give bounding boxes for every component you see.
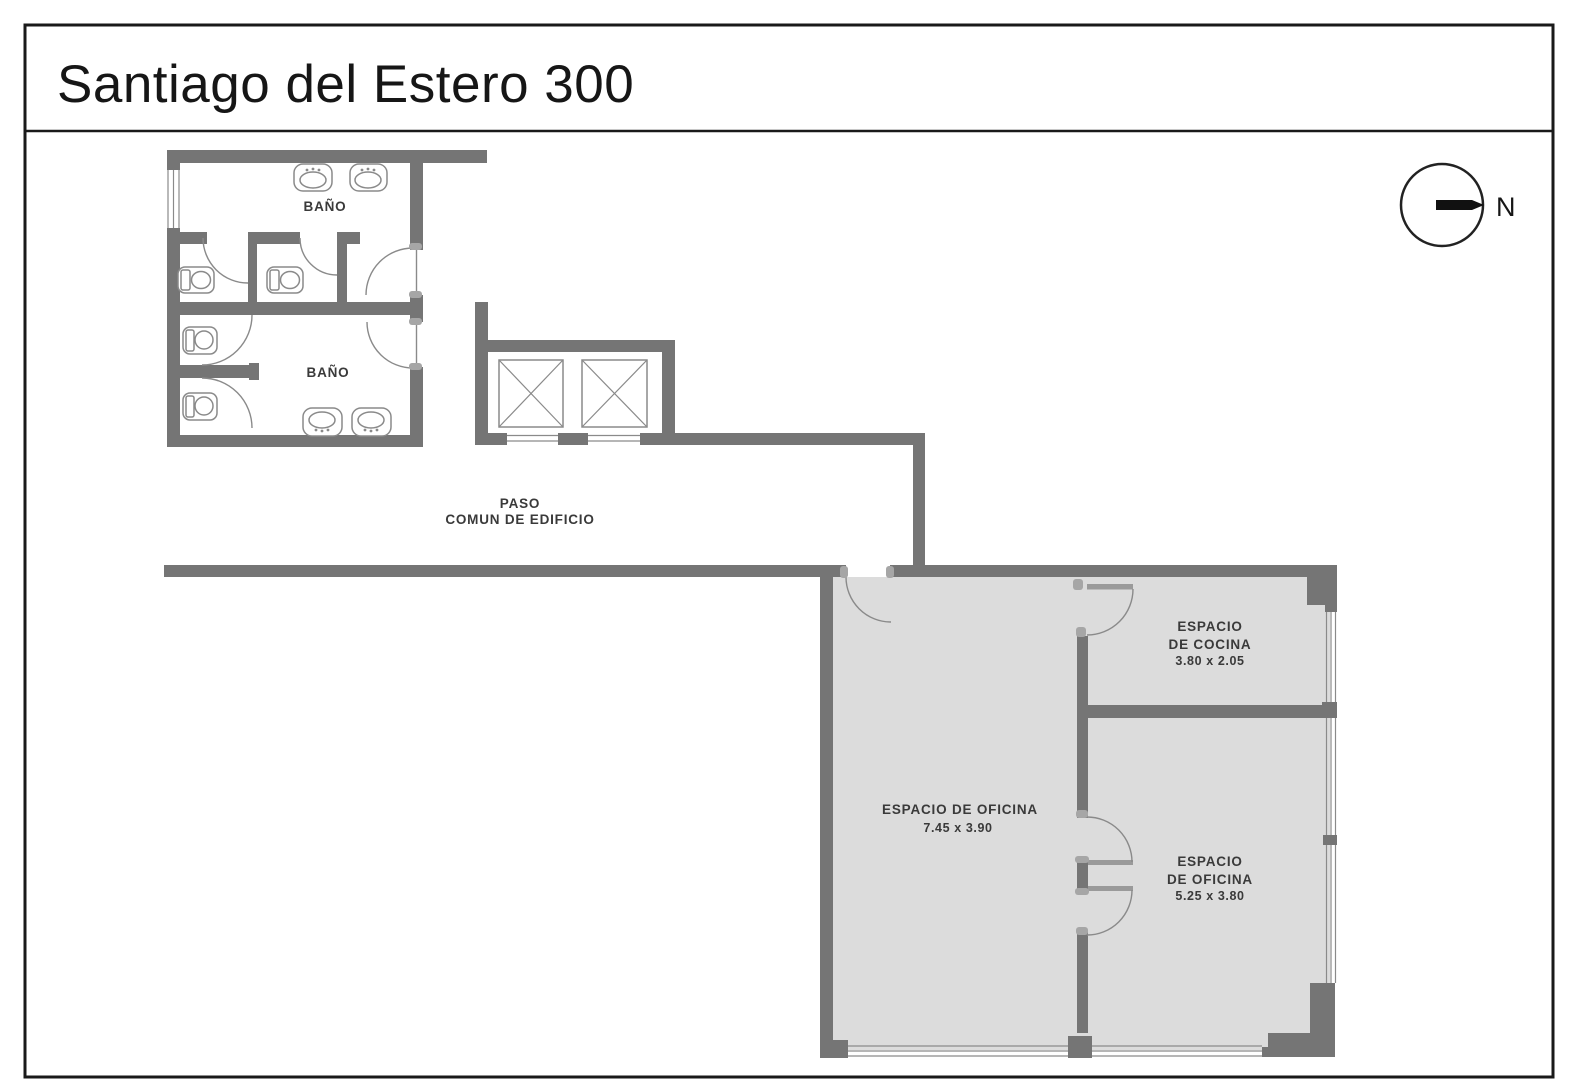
faucet-dot xyxy=(376,429,379,432)
elevator-block xyxy=(475,302,675,445)
floor-plan-canvas: Santiago del Estero 300 N xyxy=(0,0,1580,1080)
floor-plan-page: Santiago del Estero 300 N xyxy=(0,0,1580,1080)
wall xyxy=(1077,718,1088,818)
stall-partition xyxy=(337,232,347,302)
door-jamb xyxy=(840,566,848,578)
door-swing xyxy=(366,248,413,295)
door-leaf xyxy=(1087,584,1133,590)
door-leaf xyxy=(1088,886,1133,891)
wall xyxy=(662,340,675,443)
toilet xyxy=(178,267,214,293)
corridor: PASO COMUN DE EDIFICIO xyxy=(164,433,925,577)
door-jamb xyxy=(1076,810,1088,818)
stall-partition xyxy=(180,365,258,378)
window-mullion xyxy=(1323,835,1337,845)
room-label-office-main: ESPACIO DE OFICINA xyxy=(882,802,1038,817)
wall xyxy=(410,295,423,322)
wall xyxy=(167,150,487,163)
faucet-dot xyxy=(327,429,330,432)
faucet-dot xyxy=(306,169,309,172)
door-jamb xyxy=(409,363,422,370)
faucet-dot xyxy=(373,169,376,172)
toilet-tank xyxy=(270,270,279,290)
door-jamb xyxy=(886,566,894,578)
wall xyxy=(475,433,507,445)
wall xyxy=(475,302,488,443)
door-jamb xyxy=(1075,856,1089,863)
sink xyxy=(352,408,391,436)
faucet-dot xyxy=(312,168,315,171)
room-label-office-small-line1: ESPACIO xyxy=(1177,854,1242,869)
wall xyxy=(820,577,833,1040)
wall xyxy=(1077,861,1088,890)
toilet-bowl xyxy=(281,272,300,289)
room-label-kitchen-line2: DE COCINA xyxy=(1169,637,1252,652)
room-label-office-small-line2: DE OFICINA xyxy=(1167,872,1253,887)
window-mullion xyxy=(1322,702,1337,718)
toilet xyxy=(183,393,217,420)
toilet-bowl xyxy=(195,331,213,349)
door-jamb xyxy=(1073,579,1083,590)
bathroom-block: BAÑO BAÑO xyxy=(166,150,487,447)
north-arrow-icon xyxy=(1436,200,1484,210)
stall-partition-cap xyxy=(249,363,259,380)
faucet-dot xyxy=(370,430,373,433)
wall xyxy=(558,433,588,445)
door-jamb xyxy=(409,318,422,325)
stall-front-wall xyxy=(347,232,360,244)
sink xyxy=(350,164,387,191)
toilet-tank xyxy=(181,270,190,290)
wall xyxy=(488,340,673,352)
sink-basin xyxy=(358,412,384,428)
room-label-kitchen-line1: ESPACIO xyxy=(1177,619,1242,634)
faucet-dot xyxy=(315,429,318,432)
wall xyxy=(1077,932,1088,1033)
room-dims-kitchen: 3.80 x 2.05 xyxy=(1175,654,1244,668)
north-label: N xyxy=(1496,192,1516,222)
door-jamb xyxy=(1076,927,1088,935)
corridor-label-line1: PASO xyxy=(500,496,540,511)
door-jamb xyxy=(1075,888,1089,895)
sink-basin xyxy=(309,412,335,428)
wall xyxy=(1077,705,1322,718)
wall xyxy=(410,367,423,435)
faucet-dot xyxy=(361,169,364,172)
wall xyxy=(640,433,925,445)
door-leaf xyxy=(1088,860,1133,865)
toilet-bowl xyxy=(192,272,211,289)
toilet xyxy=(267,267,303,293)
toilet xyxy=(183,327,217,354)
faucet-dot xyxy=(321,430,324,433)
door-jamb xyxy=(1076,627,1086,637)
room-label-bathroom-top: BAÑO xyxy=(304,199,347,214)
faucet-dot xyxy=(364,429,367,432)
corner-column xyxy=(1068,1036,1092,1058)
sink xyxy=(303,408,342,436)
wall xyxy=(913,445,925,565)
wall xyxy=(410,163,423,250)
corner-column xyxy=(820,1040,848,1058)
toilet-bowl xyxy=(195,397,213,415)
sink-basin xyxy=(300,172,326,188)
wall xyxy=(890,565,1337,577)
door-jamb xyxy=(409,243,422,250)
faucet-dot xyxy=(367,168,370,171)
stall-partition xyxy=(248,232,257,302)
toilet-tank xyxy=(186,396,194,417)
faucet-dot xyxy=(318,169,321,172)
wall xyxy=(180,302,410,315)
room-dims-office-small: 5.25 x 3.80 xyxy=(1175,889,1244,903)
corridor-label-line2: COMUN DE EDIFICIO xyxy=(445,512,594,527)
sink xyxy=(294,164,332,191)
wall xyxy=(167,435,423,447)
north-compass: N xyxy=(1401,164,1516,246)
sink-basin xyxy=(355,172,381,188)
wall xyxy=(1077,636,1088,705)
room-label-bathroom-bottom: BAÑO xyxy=(307,365,350,380)
door-swing xyxy=(300,238,337,275)
room-dims-office-main: 7.45 x 3.90 xyxy=(923,821,992,835)
page-title: Santiago del Estero 300 xyxy=(57,55,634,114)
toilet-tank xyxy=(186,330,194,351)
stall-front-wall xyxy=(257,232,300,244)
door-jamb xyxy=(409,291,422,298)
door-swing xyxy=(367,322,413,368)
wall xyxy=(164,565,846,577)
